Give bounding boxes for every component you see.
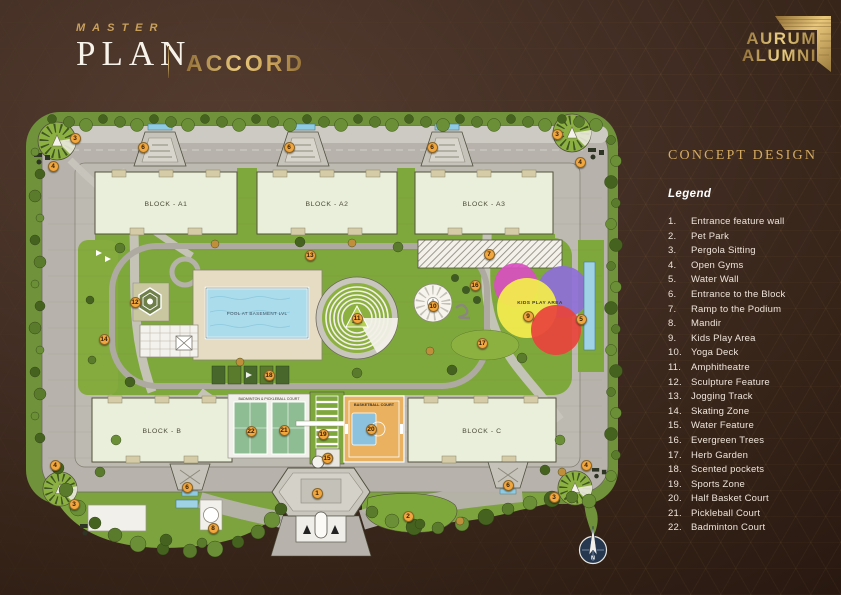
badminton-label: BADMINTON & PICKLEBALL COURT [238,397,300,401]
legend-item-8: 8.Mandir [668,317,836,332]
plan-marker-21: 21 [279,425,290,436]
legend-item-15: 15.Water Feature [668,419,836,434]
plan-marker-6: 6 [182,482,193,493]
plan-marker-13: 13 [305,250,316,261]
plan-marker-15: 15 [322,453,333,464]
plan-marker-19: 19 [318,429,329,440]
legend-item-6: 6.Entrance to the Block [668,288,836,303]
plan-marker-6: 6 [284,142,295,153]
pergola-deck [140,325,198,357]
block-a1: BLOCK - A1 [95,170,237,235]
legend-heading: Legend [668,188,836,200]
pool-complex: POOL AT BASEMENT LVL [193,270,322,360]
legend-item-9: 9.Kids Play Area [668,332,836,347]
plan-marker-22: 22 [246,426,257,437]
legend-list: 1.Entrance feature wall2.Pet Park3.Pergo… [668,215,836,536]
block-b: BLOCK - B [92,396,232,463]
legend-item-10: 10.Yoga Deck [668,346,836,361]
legend-item-13: 13.Jogging Track [668,390,836,405]
legend-item-2: 2.Pet Park [668,230,836,245]
plan-marker-4: 4 [50,460,61,471]
basketball-label: BASKETBALL COURT [354,403,395,407]
brand-logo-line1: AURUM [742,30,817,47]
concept-design-panel: CONCEPT DESIGN Legend 1.Entrance feature… [668,148,836,536]
legend-item-16: 16.Evergreen Trees [668,434,836,449]
plan-marker-10: 10 [428,301,439,312]
plan-marker-6: 6 [427,142,438,153]
legend-item-5: 5.Water Wall [668,273,836,288]
legend-item-1: 1.Entrance feature wall [668,215,836,230]
kids-play-label: KIDS PLAY AREA [517,300,563,306]
north-label: N [591,556,595,562]
mandir [204,508,219,523]
brand-logo: AURUM ALUMNI [742,30,817,64]
svg-text:BLOCK - A3: BLOCK - A3 [462,201,505,208]
plan-marker-18: 18 [264,370,275,381]
plan-marker-9: 9 [523,311,534,322]
plan-marker-20: 20 [366,424,377,435]
legend-item-19: 19.Sports Zone [668,478,836,493]
legend-item-3: 3.Pergola Sitting [668,244,836,259]
plan-marker-3: 3 [70,133,81,144]
svg-text:BLOCK - C: BLOCK - C [462,428,501,435]
plan-marker-4: 4 [48,161,59,172]
plan-marker-5: 5 [576,314,587,325]
site-plan: POOL AT BASEMENT LVL [0,0,660,595]
svg-text:BLOCK - A1: BLOCK - A1 [144,201,187,208]
legend-item-4: 4.Open Gyms [668,259,836,274]
master-plan-drawing: POOL AT BASEMENT LVL [0,0,660,595]
legend-item-12: 12.Sculpture Feature [668,376,836,391]
plan-marker-4: 4 [575,157,586,168]
plan-marker-2: 2 [403,511,414,522]
block-a2: BLOCK - A2 [257,170,397,235]
legend-item-14: 14.Skating Zone [668,405,836,420]
legend-item-7: 7.Ramp to the Podium [668,303,836,318]
legend-item-21: 21.Pickleball Court [668,507,836,522]
plan-marker-3: 3 [69,499,80,510]
brand-logo-line2: ALUMNI [742,47,817,64]
master-plan-page: MASTER PLAN ACCORD AURUM ALUMNI CONCEPT … [0,0,841,595]
plan-marker-7: 7 [484,249,495,260]
block-c: BLOCK - C [408,396,556,463]
water-wall [584,262,595,350]
plan-marker-16: 16 [470,280,481,291]
plan-marker-12: 12 [130,297,141,308]
top-sidewalk [42,126,608,143]
legend-item-11: 11.Amphitheatre [668,361,836,376]
north-compass-icon: N [580,526,607,564]
plan-marker-6: 6 [503,480,514,491]
legend-item-22: 22.Badminton Court [668,521,836,536]
plan-marker-17: 17 [477,338,488,349]
legend-item-17: 17.Herb Garden [668,449,836,464]
pool-label: POOL AT BASEMENT LVL [227,311,288,316]
legend-item-18: 18.Scented pockets [668,463,836,478]
plan-marker-3: 3 [549,492,560,503]
plan-marker-14: 14 [99,334,110,345]
plan-marker-6: 6 [138,142,149,153]
svg-text:BLOCK - A2: BLOCK - A2 [305,201,348,208]
plan-marker-8: 8 [208,523,219,534]
svg-text:BLOCK - B: BLOCK - B [142,428,181,435]
plan-marker-11: 11 [352,313,363,324]
panel-title: CONCEPT DESIGN [668,148,836,164]
plan-marker-4: 4 [581,460,592,471]
plan-marker-3: 3 [552,129,563,140]
legend-item-20: 20.Half Basket Court [668,492,836,507]
block-a3: BLOCK - A3 [415,170,553,235]
plan-marker-1: 1 [312,488,323,499]
